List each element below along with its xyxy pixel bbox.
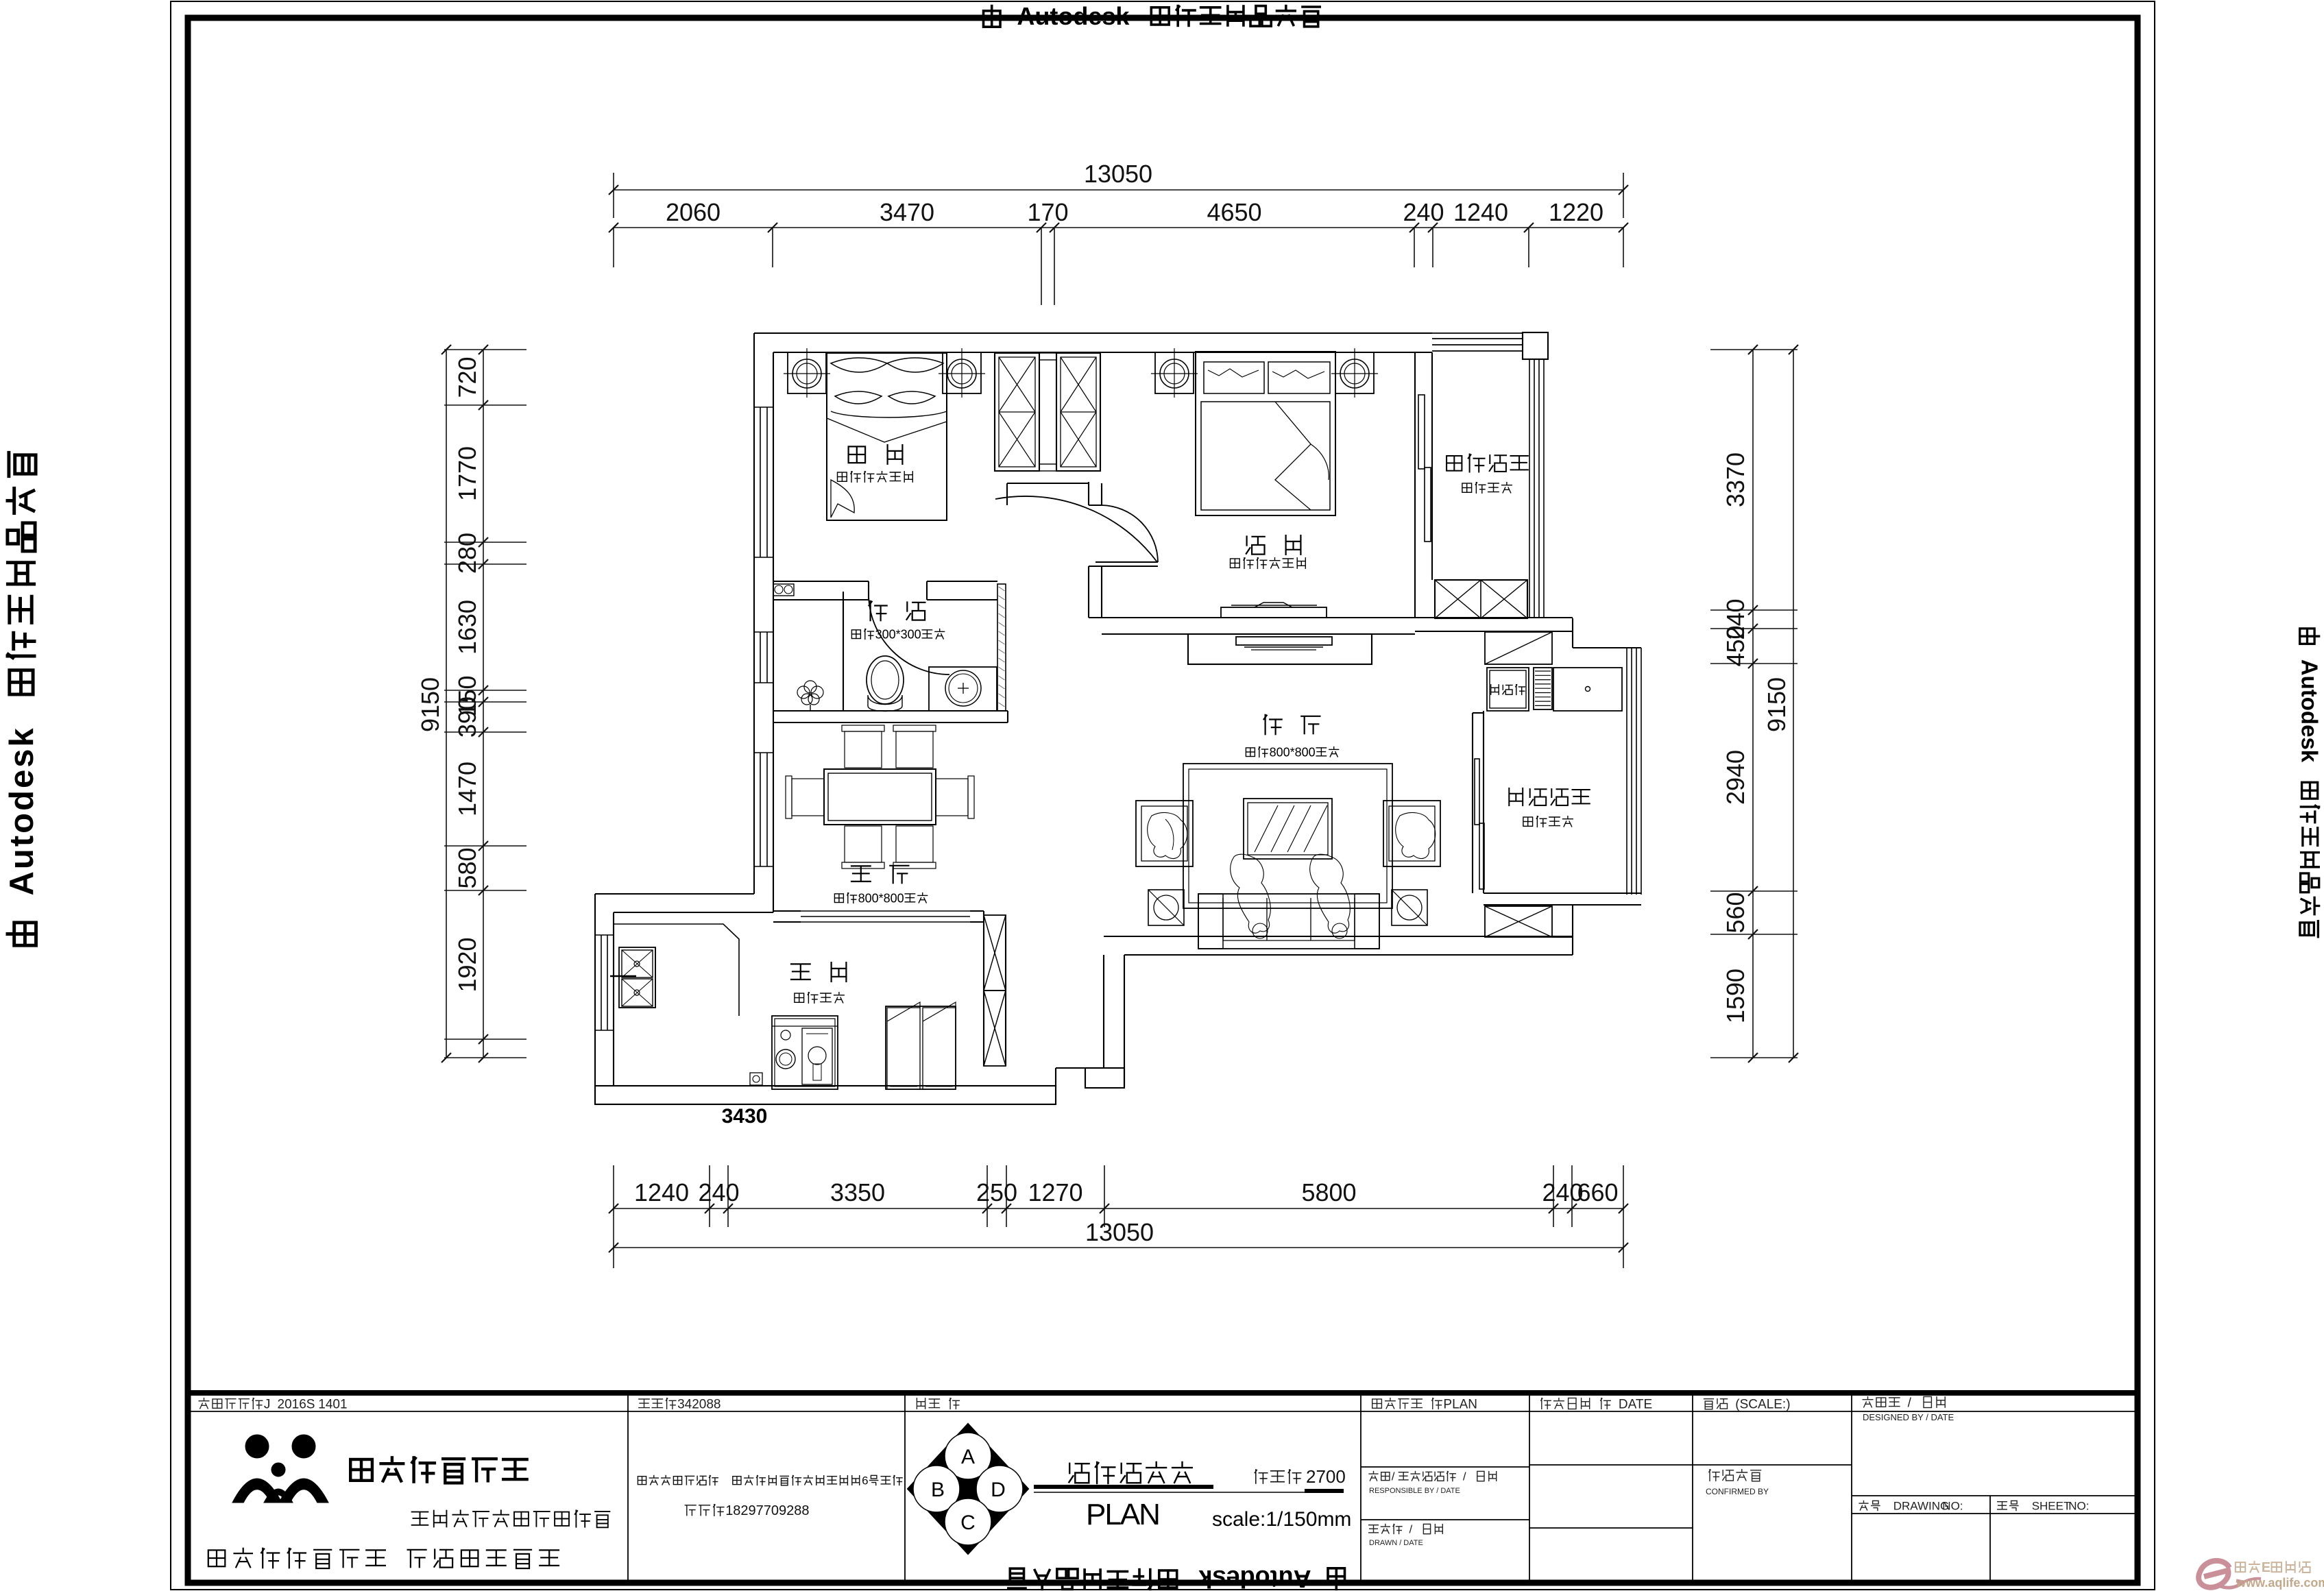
svg-text:J: J: [264, 1397, 271, 1411]
svg-text:1270: 1270: [1028, 1178, 1082, 1206]
svg-text:800*800: 800*800: [858, 892, 904, 906]
svg-text:250: 250: [976, 1178, 1017, 1206]
svg-text:9150: 9150: [416, 677, 444, 732]
svg-text:1470: 1470: [453, 762, 481, 816]
svg-text:1920: 1920: [453, 937, 481, 992]
svg-text:scale:1/150mm: scale:1/150mm: [1212, 1508, 1351, 1531]
svg-text:(SCALE:): (SCALE:): [1735, 1397, 1790, 1411]
svg-text:3350: 3350: [830, 1178, 885, 1206]
svg-text:NO:: NO:: [1942, 1500, 1963, 1513]
svg-text:Autodesk: Autodesk: [1017, 2, 1130, 30]
svg-text:3430: 3430: [722, 1105, 768, 1128]
svg-text:PLAN: PLAN: [1443, 1397, 1477, 1411]
svg-text:1630: 1630: [453, 600, 481, 655]
svg-text:13050: 13050: [1084, 160, 1152, 188]
svg-text:660: 660: [1577, 1178, 1618, 1206]
svg-text:280: 280: [453, 533, 481, 574]
svg-text:NO:: NO:: [2068, 1500, 2089, 1513]
svg-text:2060: 2060: [666, 198, 721, 226]
svg-text:9150: 9150: [1763, 677, 1791, 732]
svg-text:C: C: [960, 1511, 976, 1534]
svg-text:/: /: [1463, 1470, 1466, 1483]
svg-text:4650: 4650: [1207, 198, 1261, 226]
svg-text:RESPONSIBLE BY / DATE: RESPONSIBLE BY / DATE: [1369, 1487, 1460, 1495]
svg-text:1590: 1590: [1721, 969, 1750, 1023]
svg-text:www.aqlife.com: www.aqlife.com: [2236, 1576, 2324, 1590]
svg-text:2940: 2940: [1721, 750, 1750, 805]
svg-text:B: B: [931, 1479, 945, 1501]
svg-text:342088: 342088: [677, 1397, 721, 1411]
svg-text:13050: 13050: [1085, 1218, 1154, 1246]
svg-text:170: 170: [1027, 198, 1068, 226]
svg-text:18297709288: 18297709288: [725, 1503, 809, 1518]
svg-text:/: /: [1908, 1396, 1912, 1410]
svg-text:560: 560: [1721, 892, 1750, 933]
svg-text:DRAWN / DATE: DRAWN / DATE: [1369, 1539, 1423, 1547]
svg-text:720: 720: [453, 356, 481, 398]
svg-text:450: 450: [1721, 625, 1750, 666]
svg-text:6: 6: [862, 1474, 868, 1487]
svg-text:DATE: DATE: [1619, 1397, 1652, 1411]
svg-text:E: E: [2262, 1560, 2271, 1575]
svg-text:5800: 5800: [1301, 1178, 1356, 1206]
svg-text:1401: 1401: [318, 1397, 347, 1411]
svg-text:1240: 1240: [1453, 198, 1508, 226]
svg-text:CONFIRMED BY: CONFIRMED BY: [1706, 1487, 1769, 1496]
svg-text:3470: 3470: [880, 198, 934, 226]
svg-text:800*800: 800*800: [1270, 746, 1316, 760]
svg-text:/: /: [1392, 1470, 1395, 1483]
svg-text:DRAWING: DRAWING: [1893, 1500, 1950, 1513]
svg-text:SHEET: SHEET: [2032, 1500, 2071, 1513]
svg-text:240: 240: [1403, 198, 1444, 226]
svg-text:Autodesk: Autodesk: [1198, 1565, 1311, 1591]
svg-text:2700: 2700: [1306, 1466, 1346, 1487]
svg-text:240: 240: [698, 1178, 739, 1206]
svg-text:2016S: 2016S: [278, 1397, 315, 1411]
svg-text:1220: 1220: [1549, 198, 1603, 226]
svg-text:300*300: 300*300: [875, 628, 921, 642]
svg-text:1240: 1240: [634, 1178, 689, 1206]
svg-text:3370: 3370: [1721, 452, 1750, 507]
svg-text:DESIGNED BY / DATE: DESIGNED BY / DATE: [1863, 1412, 1954, 1422]
svg-text:Autodesk: Autodesk: [2297, 659, 2323, 763]
svg-text:580: 580: [453, 847, 481, 888]
svg-text:D: D: [991, 1479, 1006, 1501]
svg-text:A: A: [961, 1446, 975, 1468]
svg-text:1770: 1770: [453, 446, 481, 501]
svg-text:/: /: [1409, 1523, 1413, 1536]
svg-text:Autodesk: Autodesk: [3, 726, 40, 895]
svg-text:PLAN: PLAN: [1086, 1498, 1159, 1531]
svg-text:390: 390: [453, 696, 481, 738]
